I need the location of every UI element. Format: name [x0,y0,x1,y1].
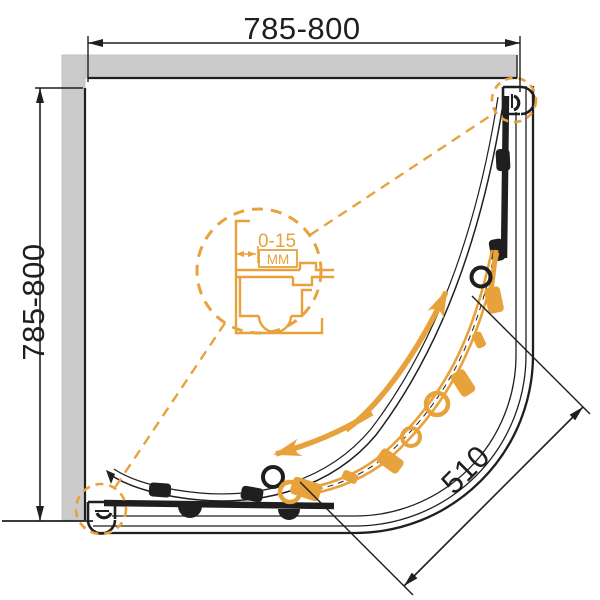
roller-wheel-icon [278,509,300,520]
dimension-diagonal: 510 [300,296,590,595]
dimension-left-label: 785-800 [16,243,51,360]
detail-leader-top-right [310,112,496,235]
door-slide-arrow-up-icon [346,292,446,430]
handle-ring-icon [472,268,491,287]
roller-icon [149,482,172,498]
door-slide-arrow-left-icon [276,413,372,454]
corner-profile-bottom-left [88,502,115,534]
detail-target-circle-top-right [492,78,536,122]
roller-icon [495,149,510,172]
wall-left [62,55,85,520]
extension-line [472,296,590,414]
dimension-top-label: 785-800 [243,11,360,46]
shower-enclosure-plan: 0-15 MM 785-800 785-800 510 [0,0,600,600]
glass-clip-bottom-left [106,470,115,484]
detail-leader-bottom-left [114,323,225,489]
detail-unit-label: MM [267,252,290,267]
extension-line [300,482,413,595]
technical-drawing-page: 0-15 MM 785-800 785-800 510 [0,0,600,600]
wall-top [62,55,517,78]
fixed-panel-bottom-left [104,503,334,506]
handle-ring-icon [263,467,283,487]
door-bracket-icon [449,368,477,399]
dimension-top: 785-800 [88,11,520,92]
detail-range-label: 0-15 [258,231,296,252]
door-bracket-icon [375,447,405,475]
